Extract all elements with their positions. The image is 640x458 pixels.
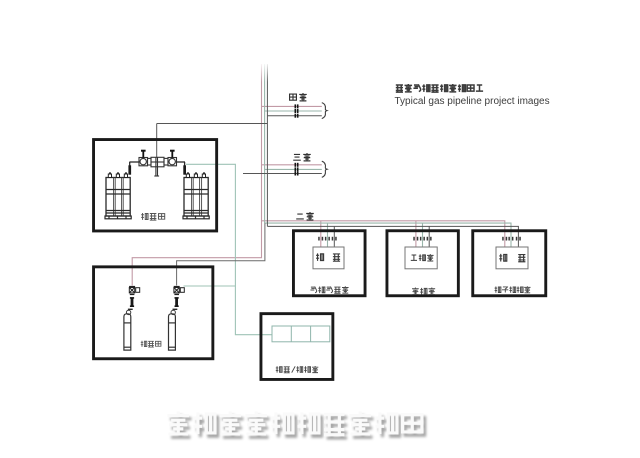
svg-text:Typical gas pipeline project i: Typical gas pipeline project images bbox=[395, 96, 550, 107]
